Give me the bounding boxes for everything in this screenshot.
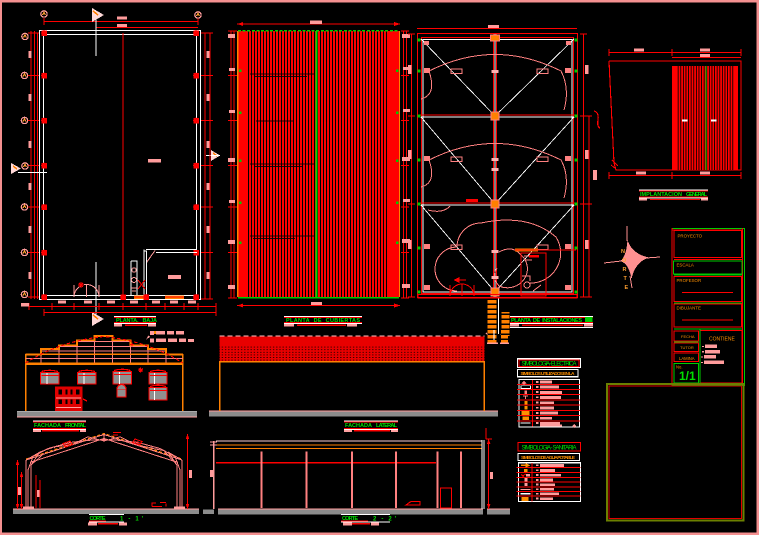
svg-text:PROYECTO: PROYECTO — [678, 234, 703, 239]
svg-text:R: R — [623, 267, 627, 273]
svg-text:CONTIENE: CONTIENE — [709, 337, 736, 343]
svg-text:ESCALA: ESCALA — [677, 263, 694, 268]
svg-text:N: N — [621, 249, 625, 255]
svg-text:LAMINA: LAMINA — [679, 356, 695, 361]
svg-text:DIBUJANTE: DIBUJANTE — [677, 306, 701, 311]
svg-text:PROFESOR: PROFESOR — [677, 278, 702, 283]
svg-text:SIMBOLOGIA - SANITARIA: SIMBOLOGIA - SANITARIA — [522, 445, 577, 451]
svg-text:O: O — [622, 258, 627, 264]
svg-text:SIMBOLOS UTILIZADOS EN LA: SIMBOLOS UTILIZADOS EN LA — [521, 371, 576, 377]
svg-text:E: E — [625, 285, 629, 291]
svg-text:1/1: 1/1 — [679, 369, 696, 383]
svg-text:SIMBOLOGIA - ELECTRICA: SIMBOLOGIA - ELECTRICA — [522, 362, 577, 368]
svg-text:FECHA: FECHA — [681, 334, 695, 339]
svg-text:TUTOR: TUTOR — [680, 345, 694, 350]
svg-text:SIMBOLOS DE AGUA POTABLE: SIMBOLOS DE AGUA POTABLE — [521, 455, 576, 461]
